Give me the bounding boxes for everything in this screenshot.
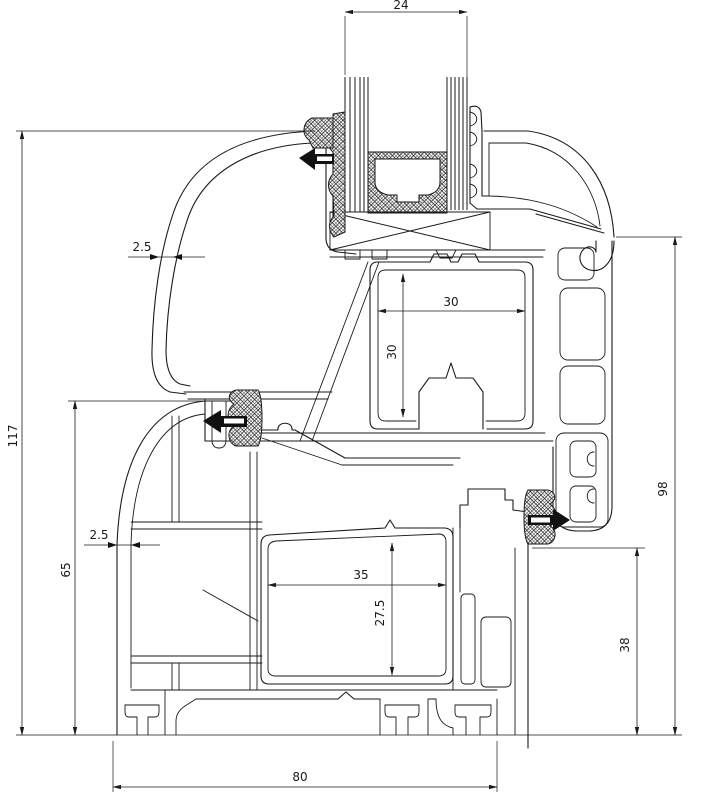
frame-profile [117,401,528,748]
dimension-sash-exterior-height: 98 [616,237,682,735]
sash-diagonal-web [300,262,379,441]
frame-outer-left [117,401,205,735]
glass-pane-right [447,77,467,210]
dimension-sash-steel-width: 30 [378,295,525,311]
dimension-glass-thickness: 24 [345,0,467,103]
dimension-frame-width: 80 [113,741,497,792]
dim-label-98: 98 [656,481,670,496]
dimension-frame-steel-width: 35 [268,568,446,585]
glass-unit [345,77,467,213]
glazing-spacer [368,152,447,213]
dim-label-2.5-upper: 2.5 [132,240,151,254]
sash-screw-channel [419,363,483,429]
drip-hook [580,241,614,271]
dimension-bead-wall: 2.5 [128,240,205,260]
window-section-drawing: 24 117 65 2.5 2.5 30 30 35 27.5 [0,0,706,804]
dimension-frame-steel-height: 27.5 [373,543,392,675]
glazing-bead [152,131,356,399]
dimension-frame-wall: 2.5 [84,528,160,548]
frame-steel-chamber [261,520,453,684]
dimension-frame-left-height: 65 [59,401,212,735]
frame-right-upstand [453,489,528,748]
mounting-feet [125,690,497,735]
technical-drawing-canvas: 24 117 65 2.5 2.5 30 30 35 27.5 [0,0,706,804]
sash-exterior-leg [470,106,614,237]
dim-label-38: 38 [618,637,632,652]
dim-label-24: 24 [393,0,408,12]
dim-label-30-horizontal: 30 [443,295,458,309]
dim-label-35: 35 [353,568,368,582]
exterior-seal-gasket [524,490,570,544]
glass-pane-left [345,77,368,212]
dim-label-2.5-lower: 2.5 [89,528,108,542]
dim-label-80: 80 [292,770,307,784]
exterior-glass-fins [470,112,477,198]
sash-overlap-leg [553,241,612,531]
dimension-frame-face-height: 38 [532,548,645,735]
dimension-sash-steel-height: 30 [385,274,403,417]
dim-label-117: 117 [6,425,20,448]
frame-screw-channel [250,452,257,690]
sash-steel-chamber [370,254,533,429]
dim-label-27.5: 27.5 [373,600,387,627]
dim-label-30-vertical: 30 [385,344,399,359]
dim-label-65: 65 [59,562,73,577]
glazing-block [330,212,490,250]
